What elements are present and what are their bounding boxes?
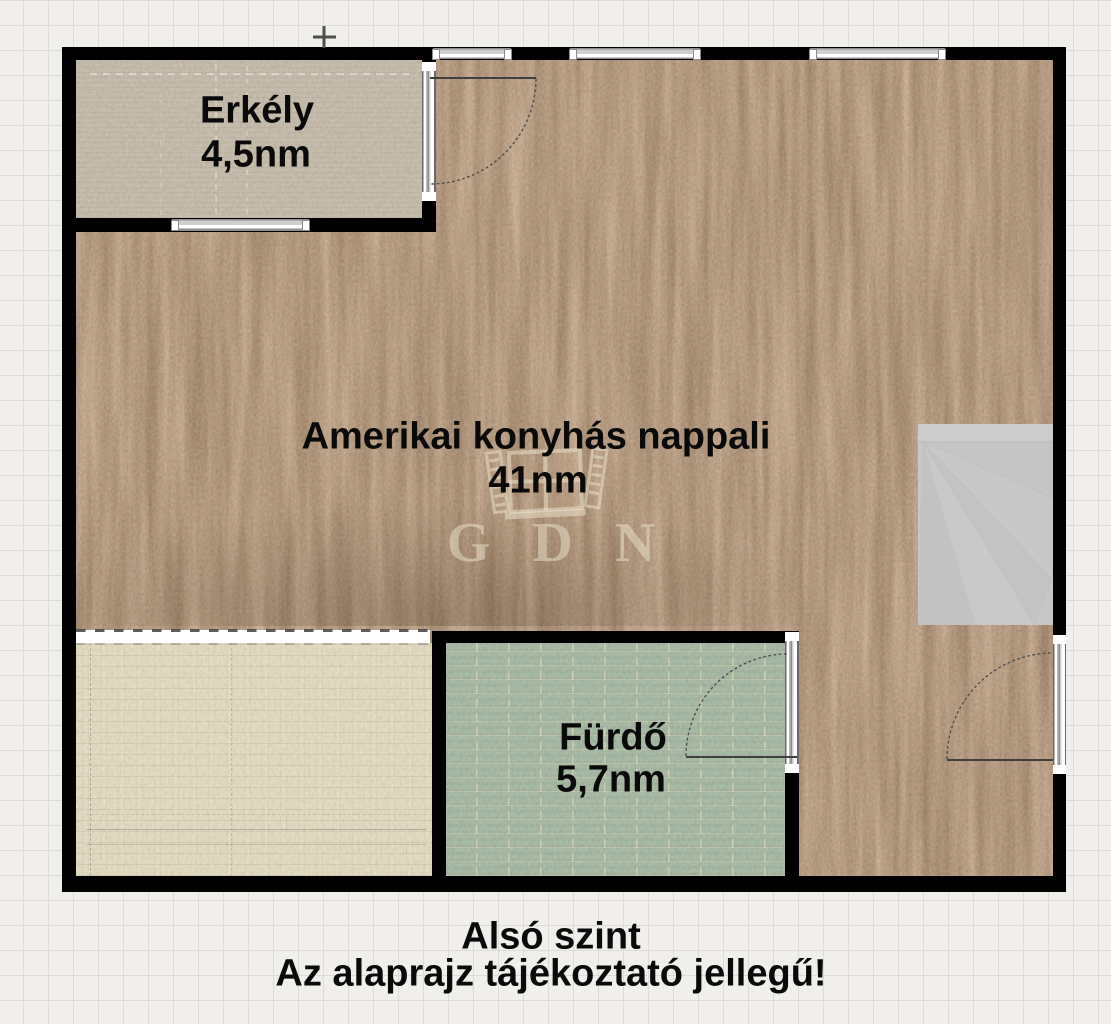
svg-text:GDN: GDN <box>447 512 697 574</box>
